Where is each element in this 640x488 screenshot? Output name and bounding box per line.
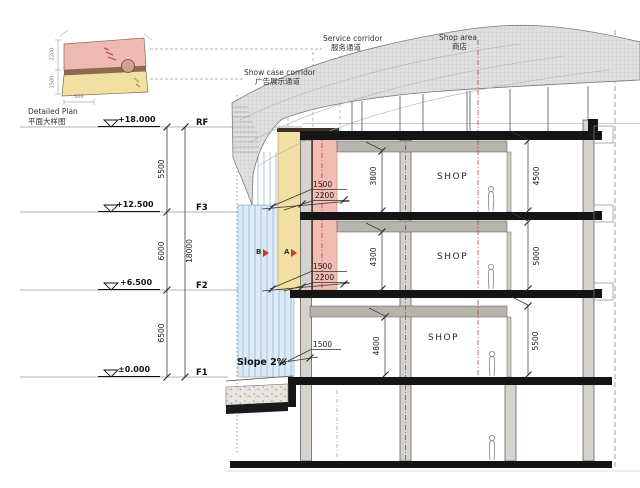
service-corridor-label-zh: 服务通道	[331, 44, 361, 52]
dim-story3-right: 4500	[533, 166, 541, 185]
architectural-section-drawing: Detailed Plan 平面大样图 Service corridor 服务通…	[0, 0, 640, 488]
dim-corridor-f2-a: 1500	[313, 263, 332, 271]
text-annotations: Detailed Plan 平面大样图 Service corridor 服务通…	[0, 0, 640, 488]
level-name-f3: F3	[196, 204, 208, 213]
dim-f2-f1: 6500	[158, 323, 166, 342]
detailed-plan-label-en: Detailed Plan	[28, 108, 78, 116]
inset-dim-bottom: 500	[74, 95, 84, 100]
service-corridor-label-en: Service corridor	[323, 35, 382, 43]
dim-corridor-f3-b: 2200	[315, 192, 334, 200]
elevation-f2: +6.500	[120, 279, 152, 287]
dim-corridor-f3-a: 1500	[313, 181, 332, 189]
level-name-f2: F2	[196, 282, 208, 291]
inset-dim-left-bottom: 1500	[50, 76, 55, 89]
detailed-plan-label-zh: 平面大样图	[28, 118, 66, 126]
showcase-corridor-label-en: Show case corridor	[244, 69, 316, 77]
shop-area-label-zh: 商店	[452, 43, 467, 51]
dim-story2-left: 4300	[370, 247, 378, 266]
shop-area-label-en: Shop area	[439, 34, 477, 42]
dim-corridor-f1: 1500	[313, 341, 332, 349]
slope-note: Slope 2%	[237, 358, 286, 368]
dim-corridor-f2-b: 2200	[315, 274, 334, 282]
dim-total: 18000	[186, 239, 194, 263]
elevation-rf: +18.000	[118, 116, 156, 124]
inset-dim-left-top: 2200	[50, 48, 55, 61]
showcase-corridor-label-zh: 广告展示通道	[255, 78, 300, 86]
dim-f3-f2: 6000	[158, 241, 166, 260]
dim-story1-left: 4800	[373, 336, 381, 355]
dim-rf-f3: 5500	[158, 159, 166, 178]
dim-story1-right: 5500	[532, 331, 540, 350]
dim-story2-right: 5000	[533, 246, 541, 265]
elevation-f3: +12.500	[116, 201, 154, 209]
level-name-f1: F1	[196, 369, 208, 378]
dim-story3-left: 3800	[370, 166, 378, 185]
shop-label-f3: SHOP	[437, 173, 468, 182]
elevation-f1: ±0.000	[118, 366, 150, 374]
level-name-rf: RF	[196, 119, 208, 128]
shop-label-f2: SHOP	[437, 253, 468, 262]
shop-label-f1: SHOP	[428, 334, 459, 343]
detail-marker-b: B	[256, 249, 261, 256]
detail-marker-a: A	[284, 249, 289, 256]
